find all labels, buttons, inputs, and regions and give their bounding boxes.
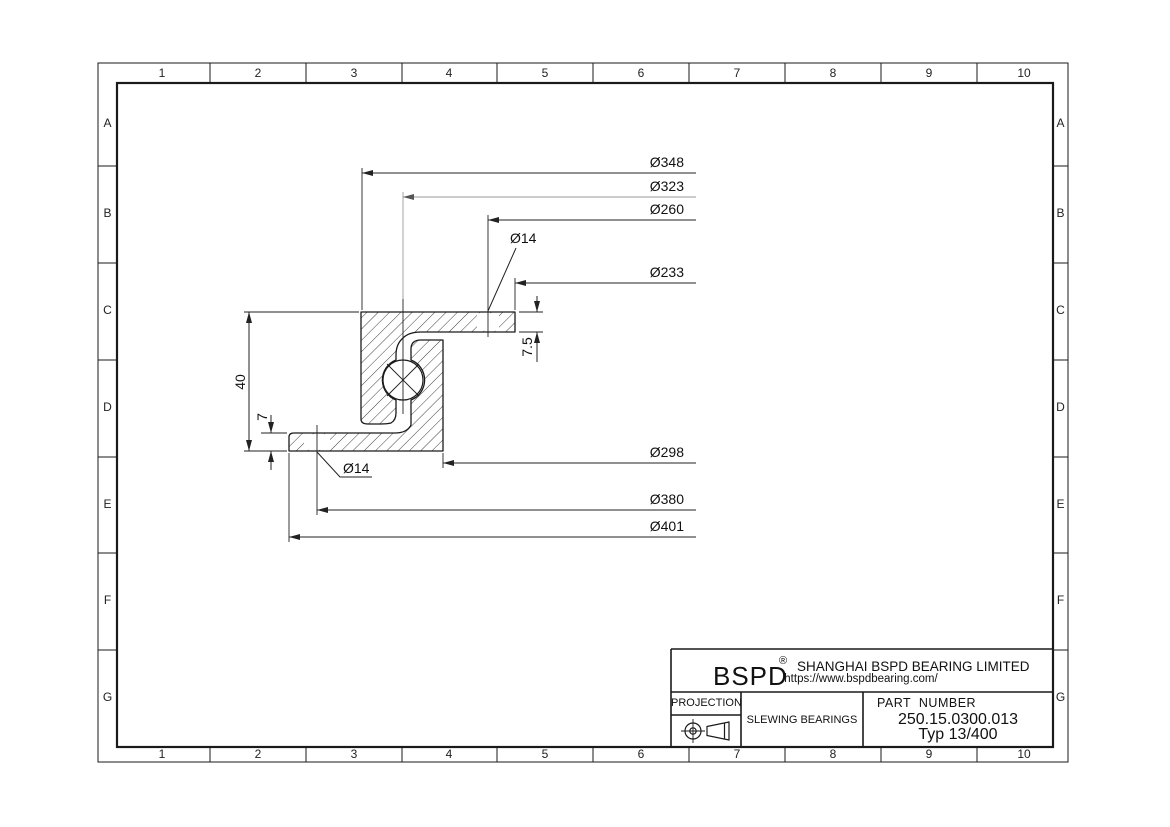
row-label: G — [1053, 690, 1068, 704]
row-label: A — [1053, 116, 1068, 130]
dim-label-hole-bottom: Ø14 — [343, 460, 369, 476]
column-label: 7 — [722, 747, 752, 761]
column-label: 5 — [530, 66, 560, 80]
column-label: 3 — [339, 747, 369, 761]
column-label: 1 — [147, 66, 177, 80]
dim-label-260: Ø260 — [624, 201, 684, 217]
column-label: 6 — [626, 747, 656, 761]
row-label: C — [98, 303, 117, 317]
dim-label-233: Ø233 — [624, 264, 684, 280]
company-website: https://www.bspdbearing.com/ — [671, 673, 1051, 685]
column-label: 5 — [530, 747, 560, 761]
dim-label-298: Ø298 — [624, 444, 684, 460]
row-label: F — [98, 593, 117, 607]
part-number-label: PART NUMBER — [877, 696, 976, 710]
column-label: 4 — [434, 747, 464, 761]
dim-348 — [362, 170, 696, 176]
column-label: 1 — [147, 747, 177, 761]
column-ticks — [210, 63, 977, 762]
column-label: 7 — [722, 66, 752, 80]
row-label: F — [1053, 593, 1068, 607]
leader-hole-top — [488, 248, 516, 311]
dim-233 — [515, 280, 696, 286]
drawing-sheet: 1 2 3 4 5 6 7 8 9 10 1 2 3 4 5 6 7 8 9 1… — [0, 0, 1170, 827]
column-label: 3 — [339, 66, 369, 80]
dim-label-height-40: 40 — [232, 367, 248, 397]
column-label: 8 — [818, 66, 848, 80]
column-label: 9 — [914, 747, 944, 761]
dimension-lines — [246, 170, 696, 540]
row-label: C — [1053, 303, 1068, 317]
dim-label-401: Ø401 — [624, 518, 684, 534]
column-label: 2 — [243, 66, 273, 80]
row-label: D — [98, 400, 117, 414]
dim-298 — [443, 460, 696, 466]
column-label: 9 — [914, 66, 944, 80]
dim-label-hole-top: Ø14 — [510, 230, 536, 246]
bearing-section-view — [289, 312, 515, 451]
row-label: B — [1053, 206, 1068, 220]
column-label: 10 — [1009, 747, 1039, 761]
projection-label: PROJECTION — [671, 697, 741, 709]
drawing-linework — [0, 0, 1170, 827]
dim-380 — [317, 507, 696, 513]
dim-label-380: Ø380 — [624, 491, 684, 507]
row-label: A — [98, 116, 117, 130]
column-label: 6 — [626, 66, 656, 80]
column-label: 10 — [1009, 66, 1039, 80]
dim-260 — [488, 217, 696, 223]
dim-323 — [403, 194, 696, 200]
dim-label-348: Ø348 — [624, 154, 684, 170]
column-label: 2 — [243, 747, 273, 761]
dim-label-flange-7-5: 7.5 — [519, 332, 535, 362]
column-label: 4 — [434, 66, 464, 80]
dim-401 — [289, 534, 696, 540]
projection-symbol-icon — [681, 719, 729, 743]
part-type-value: Typ 13/400 — [863, 726, 1053, 744]
registered-trademark-icon: ® — [779, 655, 787, 667]
row-label: G — [98, 690, 117, 704]
row-label: D — [1053, 400, 1068, 414]
product-category: SLEWING BEARINGS — [741, 714, 863, 726]
dim-label-323: Ø323 — [624, 178, 684, 194]
dim-label-flange-7: 7 — [254, 402, 270, 432]
row-label: B — [98, 206, 117, 220]
column-label: 8 — [818, 747, 848, 761]
company-name: SHANGHAI BSPD BEARING LIMITED — [797, 659, 1030, 674]
row-label: E — [1053, 497, 1068, 511]
sheet-border — [98, 63, 1068, 762]
row-label: E — [98, 497, 117, 511]
row-ticks — [98, 166, 1068, 650]
